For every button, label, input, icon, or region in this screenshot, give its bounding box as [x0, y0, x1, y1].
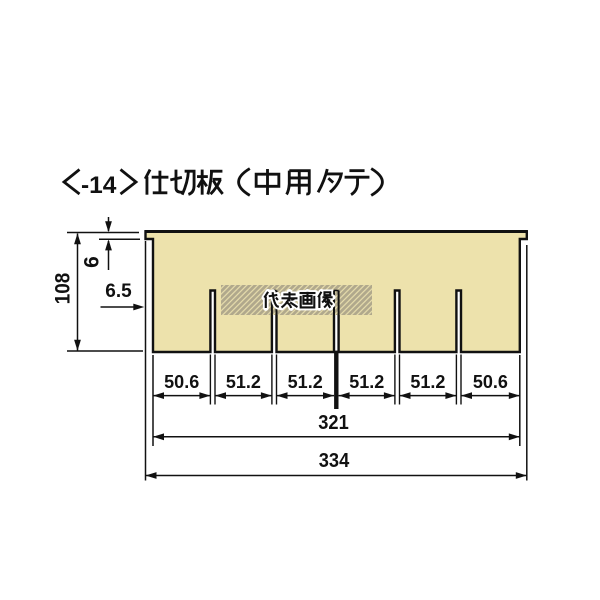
svg-text:-14: -14 [81, 172, 117, 199]
svg-text:6.5: 6.5 [105, 281, 132, 302]
svg-text:51.2: 51.2 [288, 372, 323, 392]
svg-text:51.2: 51.2 [349, 372, 384, 392]
svg-text:51.2: 51.2 [226, 372, 261, 392]
svg-text:321: 321 [318, 411, 349, 434]
svg-text:50.6: 50.6 [473, 372, 508, 392]
svg-text:50.6: 50.6 [164, 372, 199, 392]
svg-text:334: 334 [319, 449, 350, 472]
svg-text:6: 6 [81, 256, 104, 268]
svg-text:51.2: 51.2 [410, 372, 445, 392]
svg-text:108: 108 [51, 273, 75, 305]
